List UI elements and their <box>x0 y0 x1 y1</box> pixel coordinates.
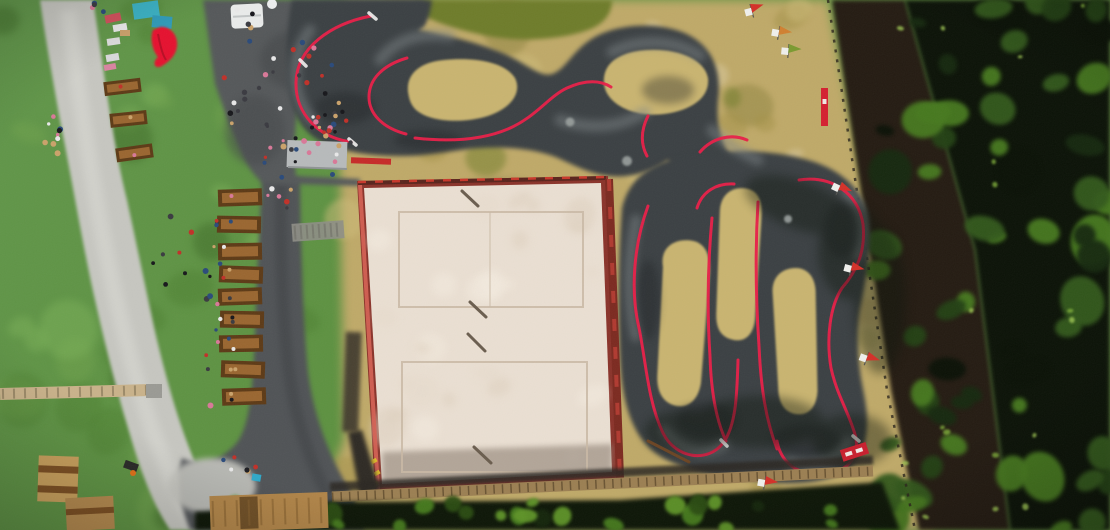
aerial-photo-stage: Aerial drone view of a pump track bike p… <box>0 0 1110 530</box>
vignette <box>0 0 1110 530</box>
aerial-photo: Aerial drone view of a pump track bike p… <box>0 0 1110 530</box>
